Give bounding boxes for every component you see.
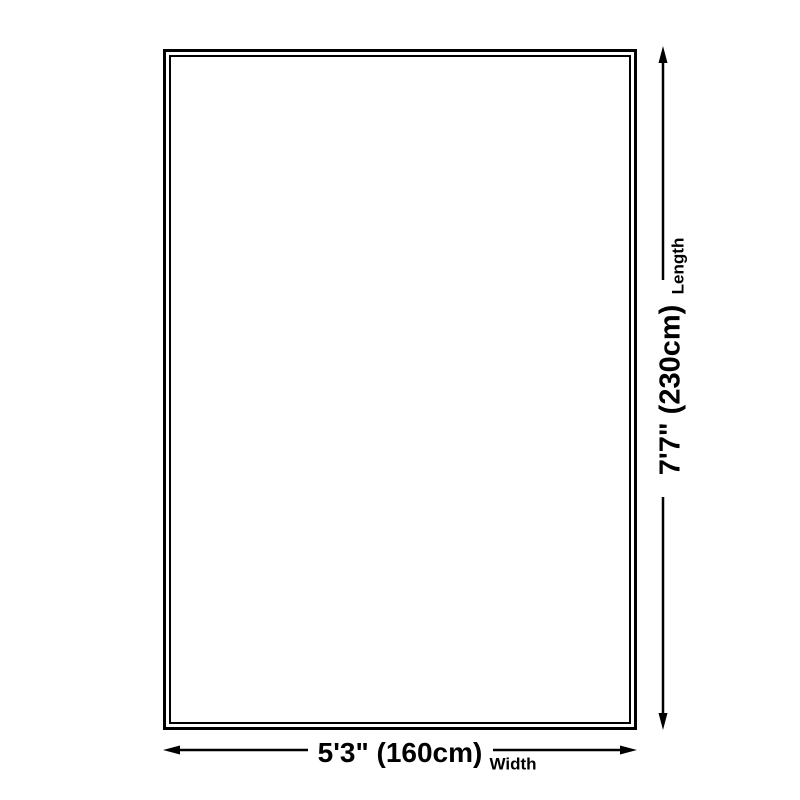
arrowhead-up-icon xyxy=(659,46,668,63)
width-value: 5'3" (160cm) xyxy=(318,739,483,767)
length-label: Length xyxy=(670,238,687,295)
length-value: 7'7" (230cm) xyxy=(657,305,686,476)
arrowhead-left-icon xyxy=(163,746,180,755)
rug-outline xyxy=(163,49,637,730)
width-label: Width xyxy=(489,756,536,773)
arrowhead-right-icon xyxy=(620,746,637,755)
rug-outline-inner-border xyxy=(169,55,631,724)
arrowhead-down-icon xyxy=(659,713,668,730)
dimension-diagram: 7'7" (230cm) Length 5'3" (160cm) Width xyxy=(0,0,800,800)
